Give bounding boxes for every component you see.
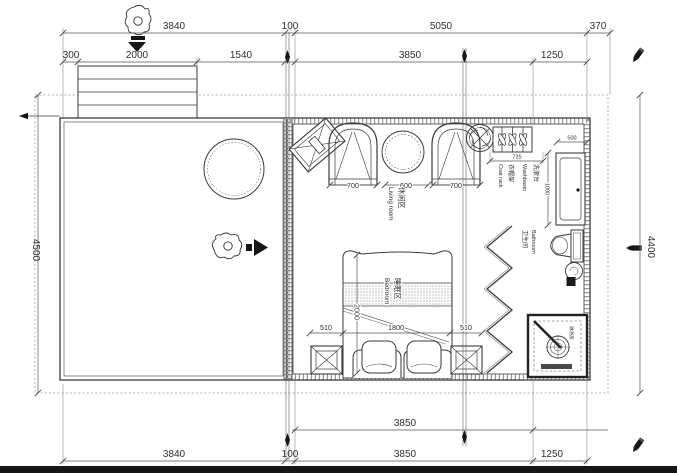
living-label-zh: 休闲区	[397, 187, 406, 209]
nightstand-left	[311, 346, 342, 374]
dim-bottom-3850: 3850	[394, 449, 417, 460]
dim-top2-2000: 2000	[126, 50, 149, 61]
dim-bottom-1250: 1250	[541, 449, 564, 460]
dim-bottom-3840: 3840	[163, 449, 186, 460]
floorplan-canvas: 淋浴房	[0, 0, 677, 473]
person-entry-icon	[125, 5, 151, 34]
dim-top-3840: 3840	[163, 21, 186, 32]
washbasin-label-en: Washbasin	[521, 164, 527, 191]
living-label-en: Living room	[387, 187, 394, 221]
person-interior-icon	[212, 233, 241, 259]
dim-top-370: 370	[590, 21, 607, 32]
dim-bed-510-right: 510	[460, 323, 472, 332]
dim-top2-1250: 1250	[541, 50, 564, 61]
dim-chair-700-left: 700	[347, 181, 359, 190]
nightstand-right	[451, 346, 482, 374]
coat-rack	[493, 127, 532, 152]
dim-bottom-inner-3850: 3850	[394, 418, 417, 429]
bedroom-label-zh: 睡眠区	[393, 278, 402, 300]
floorplan-screenshot: 淋浴房	[0, 0, 677, 473]
shower-label-zh: 淋浴房	[568, 326, 575, 340]
bathroom-label-en: Bathroom	[530, 230, 536, 254]
bottom-edge-bar	[0, 466, 677, 473]
dim-top-5050: 5050	[430, 21, 453, 32]
dim-right-4400: 4400	[645, 236, 656, 259]
entry-steps	[78, 66, 197, 118]
dim-basin-500: 500	[567, 136, 576, 142]
dim-chair-700-right: 700	[450, 181, 462, 190]
pillow-right	[407, 341, 441, 373]
dim-top-100: 100	[282, 21, 299, 32]
pillow-left	[362, 341, 396, 373]
washbasin	[556, 153, 585, 225]
washbasin-label-zh: 洗漱台	[532, 164, 540, 182]
dim-bed-1800: 1800	[388, 323, 404, 332]
dim-left-4500: 4500	[30, 239, 41, 262]
dim-coatrack-725: 725	[512, 155, 521, 161]
bedroom-label-en: Bedroom	[383, 278, 390, 304]
dim-top2-300: 300	[63, 50, 80, 61]
dim-bed-2000: 2000	[353, 304, 362, 320]
dim-top2-3850: 3850	[399, 50, 422, 61]
dim-basin-1000: 1000	[544, 183, 550, 195]
bathroom-label-zh: 卫生间	[521, 230, 529, 248]
coatrack-label-zh: 衣帽架	[507, 164, 515, 182]
dim-bed-510-left: 510	[320, 323, 332, 332]
dim-top2-1540: 1540	[230, 50, 253, 61]
dim-bottom-100: 100	[282, 449, 299, 460]
coatrack-label-en: Coat rack	[497, 164, 503, 188]
shower-cabin: 淋浴房	[528, 315, 587, 377]
